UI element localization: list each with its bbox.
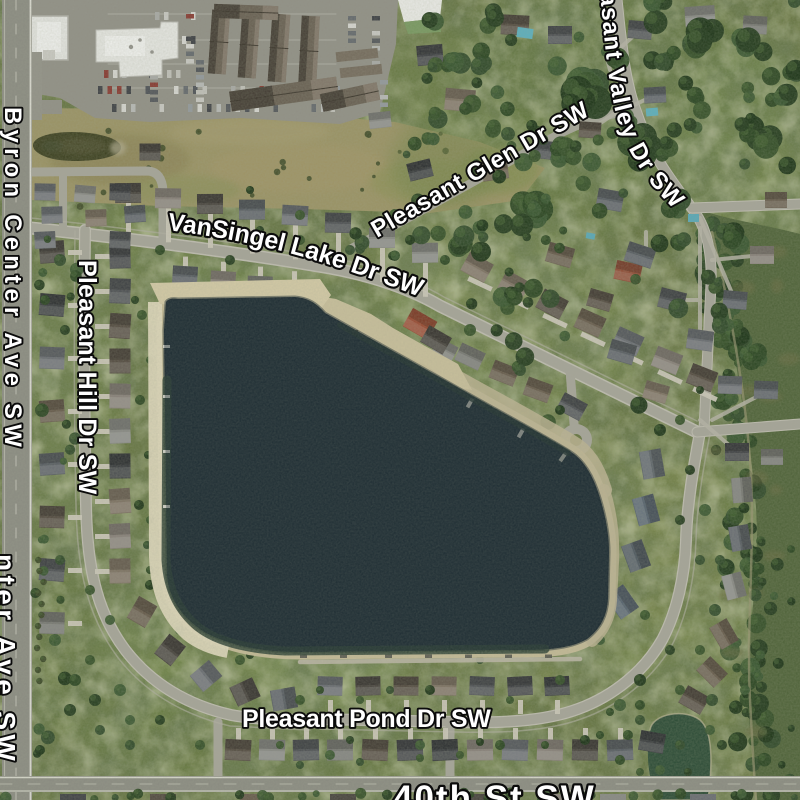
svg-text:Byron Center Ave SW: Byron Center Ave SW [0,107,26,452]
svg-text:Pleasant Pond Dr SW: Pleasant Pond Dr SW [242,705,491,733]
svg-text:Pleasant Hill Dr SW: Pleasant Hill Dr SW [73,260,101,495]
svg-text:nter Ave SW: nter Ave SW [0,554,21,765]
svg-text:40th St SW: 40th St SW [393,779,596,800]
